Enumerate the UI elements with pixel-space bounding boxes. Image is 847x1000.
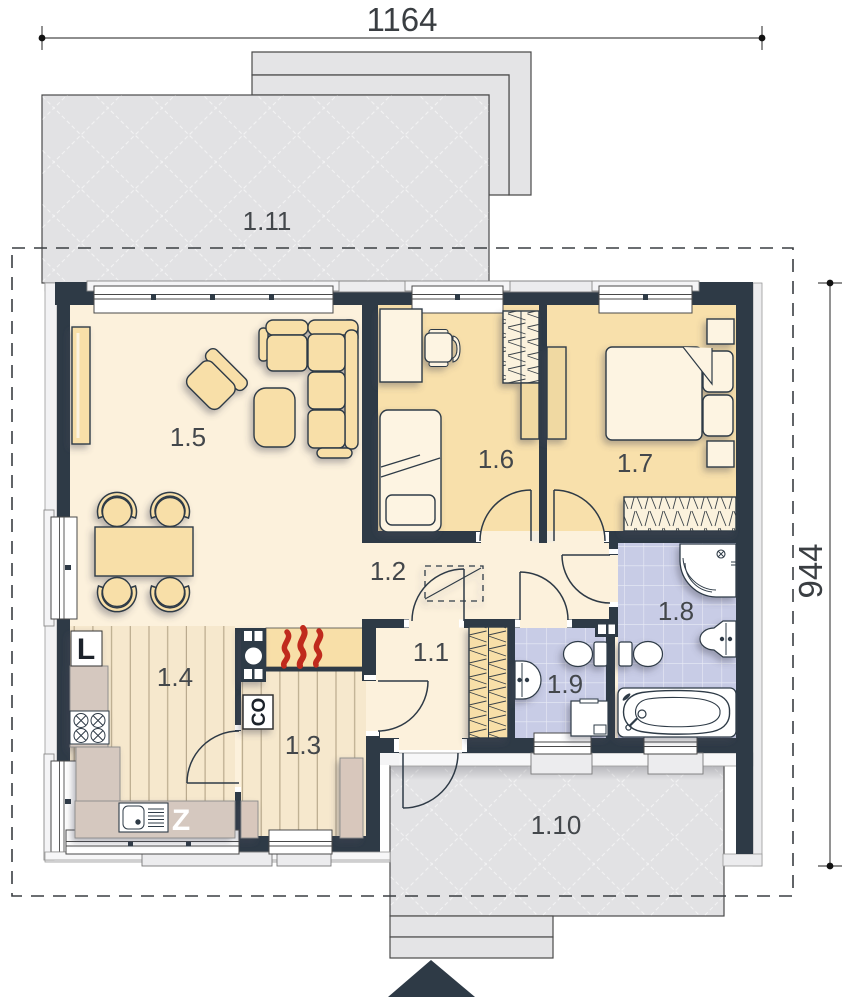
svg-text:1.7: 1.7: [617, 448, 653, 478]
svg-text:L: L: [77, 633, 95, 666]
svg-text:1.3: 1.3: [285, 730, 321, 760]
svg-text:1.6: 1.6: [478, 444, 514, 474]
svg-text:CO: CO: [249, 698, 270, 727]
svg-text:1164: 1164: [367, 1, 438, 38]
svg-text:1.4: 1.4: [157, 662, 193, 692]
svg-text:1.5: 1.5: [170, 422, 206, 452]
svg-text:1.8: 1.8: [658, 596, 694, 626]
svg-text:Z: Z: [172, 804, 190, 837]
svg-text:1.1: 1.1: [413, 637, 449, 667]
svg-text:1.9: 1.9: [547, 669, 583, 699]
svg-text:1.11: 1.11: [243, 206, 292, 236]
svg-text:1.2: 1.2: [370, 556, 406, 586]
svg-text:1.10: 1.10: [531, 810, 582, 840]
svg-text:944: 944: [792, 543, 829, 598]
